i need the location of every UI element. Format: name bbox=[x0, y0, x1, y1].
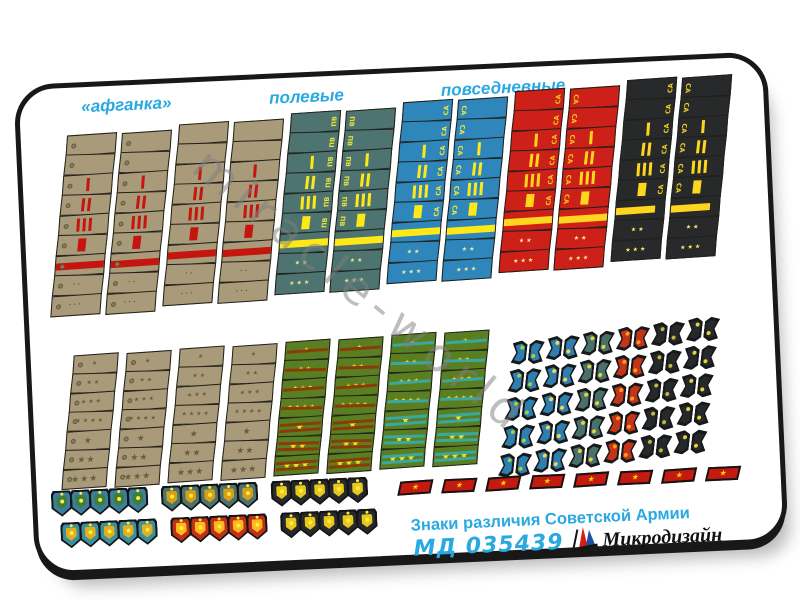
chevron-emblem bbox=[556, 434, 560, 438]
chevron-tab bbox=[638, 435, 656, 460]
chevron-emblem bbox=[594, 401, 598, 405]
red-collar-tab: ★ bbox=[485, 475, 521, 492]
chevron-face bbox=[600, 333, 612, 352]
rank-stripe bbox=[255, 204, 259, 217]
officer-stripe bbox=[281, 407, 322, 411]
officer-stripe bbox=[444, 359, 485, 363]
officer-rank-stars: ★★★★ bbox=[128, 415, 158, 422]
chevron-tab bbox=[536, 420, 554, 445]
rank-stripe bbox=[189, 227, 198, 240]
chevron-tab bbox=[612, 355, 630, 380]
patch-star-dot bbox=[280, 483, 283, 486]
chevron-face bbox=[660, 409, 672, 428]
rank-stars: ★★ bbox=[294, 260, 309, 266]
board-letters: СА bbox=[570, 113, 578, 123]
rank-stripe bbox=[77, 238, 86, 251]
chevron-tab bbox=[651, 322, 669, 347]
chevron-tab bbox=[521, 396, 539, 421]
rank-stripe bbox=[534, 154, 538, 167]
collar-chevron-pair bbox=[571, 415, 606, 441]
rank-stripe bbox=[86, 178, 90, 191]
officer-board-column-everyday-green-red-stripe: ★★★★★★★★★★★★★★★★ bbox=[273, 340, 331, 480]
rank-stripe bbox=[467, 183, 471, 196]
longitudinal-band bbox=[559, 213, 608, 223]
rank-stripe bbox=[536, 173, 540, 186]
rank-stripe bbox=[636, 163, 640, 176]
chevron-tab bbox=[504, 397, 522, 422]
rank-stars: ★★★ bbox=[513, 257, 536, 265]
chevron-face bbox=[670, 324, 682, 343]
board-letters: СА bbox=[437, 166, 445, 176]
chevron-tab bbox=[588, 415, 606, 440]
officer-rank-stars: ★★ bbox=[139, 377, 154, 383]
chevron-emblem bbox=[518, 467, 522, 471]
patch-star-dot bbox=[107, 522, 110, 525]
chevron-tab bbox=[696, 373, 714, 398]
rank-stripe bbox=[580, 191, 589, 204]
officer-stripe bbox=[438, 418, 480, 424]
chevron-face bbox=[587, 446, 599, 465]
chevron-tab bbox=[581, 331, 599, 356]
sleeve-patch bbox=[180, 484, 202, 511]
rank-stripe bbox=[473, 182, 477, 195]
board-letters: СА bbox=[684, 83, 691, 93]
microdesign-logo-icon bbox=[571, 526, 598, 553]
officer-stripe bbox=[285, 368, 326, 372]
rank-stripe bbox=[137, 216, 141, 229]
longitudinal-band bbox=[392, 227, 441, 237]
longitudinal-band bbox=[616, 205, 656, 215]
board-letters: СА bbox=[676, 163, 683, 173]
rank-stripe bbox=[579, 172, 583, 185]
chevron-tab bbox=[703, 317, 721, 342]
rank-stripe bbox=[198, 187, 202, 200]
chevron-tab bbox=[562, 335, 580, 360]
rank-stripe bbox=[695, 140, 699, 153]
board-group-everyday-blue-SA: САСАСАСАСАСА★★★★★САСАСАСАСАСА★★★★★ bbox=[389, 99, 503, 302]
board-column: ••••• bbox=[105, 131, 172, 314]
logo-red-sail bbox=[577, 527, 588, 547]
board-button bbox=[126, 140, 131, 145]
shoulder-board-three-stars: ★★★ bbox=[329, 268, 381, 292]
brand-row: Микродизайн bbox=[571, 521, 723, 554]
sleeve-patch bbox=[127, 487, 149, 514]
patch-group bbox=[270, 477, 366, 507]
chevron-face bbox=[527, 371, 539, 390]
rank-stripe bbox=[692, 180, 701, 193]
rank-stripe bbox=[418, 185, 422, 198]
rank-stripe bbox=[304, 176, 308, 189]
rank-stars: ★★★ bbox=[401, 268, 424, 276]
officer-rank-stars: ★★ bbox=[236, 445, 255, 454]
decal-sheet-photo: «афганка» полевые повседневные •••••••••… bbox=[0, 0, 800, 600]
board-button bbox=[113, 281, 119, 286]
rank-stripe bbox=[135, 196, 139, 209]
shoulder-board-three-stars: ••• bbox=[105, 290, 157, 314]
collar-chevron-pair bbox=[542, 363, 577, 389]
collar-tab-star: ★ bbox=[411, 483, 420, 492]
chevron-tab bbox=[533, 448, 551, 473]
rank-stripe bbox=[194, 207, 198, 220]
chevron-emblem bbox=[693, 444, 697, 448]
officer-rank-stars: ★ bbox=[136, 433, 146, 443]
chevron-face bbox=[622, 442, 634, 461]
rank-stripe bbox=[530, 174, 534, 187]
board-group-field-khaki: •••••••••• bbox=[166, 121, 279, 312]
rank-stripe bbox=[479, 182, 483, 195]
patch-star-dot bbox=[355, 479, 358, 482]
officer-stripe bbox=[385, 421, 427, 427]
collar-chevron-pair bbox=[676, 401, 711, 427]
officer-rank-stars: ★★★ bbox=[230, 464, 258, 475]
officer-board-column-everyday-green-teal-stripe: ★★★★★★★★★★★★★★★★ bbox=[379, 333, 437, 475]
chevron-tab bbox=[686, 317, 704, 342]
collar-chevron-pair bbox=[536, 419, 571, 445]
rank-stripe bbox=[301, 216, 310, 229]
chevron-tab bbox=[641, 406, 659, 431]
officer-stripe bbox=[381, 459, 423, 465]
officer-shoulder-board: ★★★ bbox=[273, 453, 319, 476]
rank-stripe bbox=[359, 174, 363, 187]
board-letters: СА bbox=[680, 123, 687, 133]
sleeve-patch bbox=[327, 478, 349, 505]
collar-chevron-pair bbox=[581, 330, 616, 356]
chevron-tab bbox=[545, 336, 563, 361]
rank-stripe bbox=[361, 194, 365, 207]
patch-group bbox=[51, 487, 147, 517]
officer-stripe bbox=[393, 341, 435, 347]
rank-stripe bbox=[300, 196, 304, 209]
rank-stars: ★★ bbox=[406, 249, 421, 255]
rank-stripe bbox=[589, 151, 593, 164]
officer-rank-stars: ★★★ bbox=[71, 473, 99, 484]
rank-stars: •• bbox=[73, 282, 83, 287]
rank-stripe bbox=[641, 143, 645, 156]
rank-stripe bbox=[365, 153, 369, 166]
chevron-face bbox=[530, 343, 542, 362]
chevron-face bbox=[664, 381, 676, 400]
board-letters: СА bbox=[454, 164, 462, 174]
officer-stripe bbox=[331, 439, 372, 443]
board-group-everyday-teal-PV: ПВПВПВПВПВПВ★★★★★ПВПВПВПВПВПВ★★★★★ bbox=[278, 110, 392, 307]
officer-stripe bbox=[287, 348, 329, 354]
rank-stripe bbox=[477, 162, 481, 175]
rank-stars: ★★★ bbox=[680, 244, 703, 252]
board-letters: СА bbox=[657, 184, 665, 194]
rank-stars: ★★★ bbox=[344, 277, 367, 285]
chevron-emblem bbox=[665, 392, 669, 396]
officer-shoulder-board: ★★★ bbox=[379, 446, 425, 469]
officer-rank-stars: ★★★★ bbox=[181, 411, 211, 418]
chevron-face bbox=[523, 399, 535, 418]
chevron-emblem bbox=[553, 462, 557, 466]
officer-stripe bbox=[437, 432, 478, 436]
collar-chevron-pair bbox=[574, 387, 609, 413]
rank-stars: ★★★ bbox=[289, 279, 312, 287]
chevron-emblem bbox=[598, 373, 602, 377]
officer-stripe bbox=[277, 447, 318, 451]
officer-stripe bbox=[336, 384, 378, 390]
board-button bbox=[63, 223, 68, 228]
chevron-tab bbox=[510, 340, 528, 365]
board-letters: ПВ bbox=[325, 177, 333, 188]
collar-chevron-pair bbox=[673, 429, 708, 455]
officer-rank-stars: ★★★ bbox=[81, 398, 104, 406]
rank-stars: ★★★ bbox=[625, 246, 648, 254]
sleeve-patch bbox=[236, 482, 258, 509]
chevron-tab bbox=[556, 391, 574, 416]
decal-card: «афганка» полевые повседневные •••••••••… bbox=[13, 51, 789, 577]
rank-stars: ★★ bbox=[518, 238, 533, 244]
rank-stripe bbox=[477, 142, 481, 155]
rank-stars: ★★ bbox=[573, 235, 588, 241]
rank-stripe bbox=[424, 185, 428, 198]
chevron-tab bbox=[603, 439, 621, 464]
collar-chevron-pair bbox=[683, 345, 718, 371]
board-button bbox=[76, 381, 82, 386]
chevron-face bbox=[667, 352, 679, 371]
board-letters: ПВ bbox=[327, 156, 334, 167]
chevron-face bbox=[657, 437, 669, 456]
rank-stripe bbox=[367, 193, 371, 206]
board-letters: ПВ bbox=[348, 116, 355, 127]
board-button bbox=[71, 439, 76, 444]
board-letters: СА bbox=[678, 142, 686, 152]
rank-stripe bbox=[591, 171, 595, 184]
sleeve-patch bbox=[51, 490, 73, 517]
board-letters: ПВ bbox=[323, 196, 330, 207]
chevron-emblem bbox=[591, 429, 595, 433]
officer-rank-stars: ★★★ bbox=[240, 389, 263, 397]
rank-stripe bbox=[188, 208, 192, 221]
collar-chevron-pair bbox=[498, 452, 533, 478]
red-collar-tab: ★ bbox=[573, 471, 609, 488]
chevron-emblem bbox=[566, 349, 570, 353]
patch-star-dot bbox=[365, 511, 368, 514]
shoulder-board-three-stars: ★★★ bbox=[441, 257, 493, 281]
collar-chevron-pair bbox=[686, 317, 721, 343]
board-letters: ПВ bbox=[342, 175, 350, 186]
chevron-tab bbox=[661, 377, 679, 402]
rank-stripe bbox=[468, 203, 477, 216]
rank-stripe bbox=[76, 219, 80, 232]
collar-chevron-pair bbox=[504, 396, 539, 422]
board-button bbox=[78, 362, 83, 367]
collar-chevron-pair bbox=[545, 335, 580, 361]
rank-stripe bbox=[534, 134, 538, 147]
chevron-tab bbox=[616, 326, 634, 351]
chevron-emblem bbox=[671, 335, 675, 339]
board-button bbox=[58, 283, 64, 288]
sleeve-patch bbox=[308, 478, 330, 505]
shoulder-board-three-stars: ••• bbox=[217, 279, 269, 303]
officer-rank-stars: ★★ bbox=[183, 448, 202, 457]
shoulder-board-three-stars: ••• bbox=[50, 293, 102, 317]
officer-shoulder-board: ★★★ bbox=[114, 465, 160, 488]
rank-stripe bbox=[701, 120, 705, 133]
rank-stripe bbox=[356, 214, 365, 227]
chevron-tab bbox=[577, 359, 595, 384]
rank-stripe bbox=[200, 207, 204, 220]
rank-stripe bbox=[244, 225, 253, 238]
collar-chevron-pair bbox=[539, 391, 574, 417]
chevron-face bbox=[552, 451, 564, 470]
officer-rank-stars: ★ bbox=[92, 361, 100, 368]
board-button bbox=[74, 400, 79, 405]
board-letters: ПВ bbox=[331, 115, 338, 126]
board-letters: СА bbox=[552, 115, 560, 125]
chevron-tab bbox=[629, 354, 647, 379]
chevron-tab bbox=[539, 392, 557, 417]
shoulder-board-three-stars: ★★★ bbox=[553, 246, 605, 270]
board-letters: СА bbox=[460, 105, 467, 115]
shoulder-board-three-stars: ••• bbox=[162, 282, 214, 306]
rank-stars: ★★ bbox=[630, 226, 645, 232]
rank-stripe bbox=[589, 131, 593, 144]
board-button bbox=[69, 162, 75, 167]
patch-star-dot bbox=[98, 491, 101, 494]
collar-chevron-pair bbox=[533, 448, 568, 474]
chevron-face bbox=[594, 390, 606, 409]
patch-star-dot bbox=[179, 519, 182, 522]
officer-stripe bbox=[330, 445, 371, 449]
officer-rank-stars: ★ bbox=[145, 358, 153, 365]
collar-tab-star: ★ bbox=[587, 475, 596, 484]
officer-rank-stars: ★★★★ bbox=[234, 409, 264, 416]
board-letters: СА bbox=[458, 124, 466, 134]
sleeve-patch bbox=[98, 520, 120, 547]
red-collar-tab: ★ bbox=[529, 474, 565, 490]
sleeve-patch bbox=[299, 511, 321, 538]
sleeve-patch bbox=[189, 516, 211, 543]
sleeve-patch bbox=[70, 489, 92, 516]
longitudinal-band bbox=[223, 246, 272, 256]
chevron-tab bbox=[498, 453, 516, 478]
officer-stripe bbox=[278, 442, 319, 446]
officer-stripe bbox=[279, 427, 321, 433]
board-button bbox=[71, 143, 76, 148]
sleeve-patch bbox=[346, 477, 368, 504]
chevron-emblem bbox=[528, 382, 532, 386]
sleeve-patch bbox=[227, 514, 249, 541]
rank-stars: ••• bbox=[236, 289, 251, 295]
chevron-emblem bbox=[630, 396, 634, 400]
collar-tab-star: ★ bbox=[719, 469, 728, 477]
chevron-face bbox=[517, 455, 529, 474]
rank-stripe bbox=[243, 205, 247, 218]
chevron-tab bbox=[553, 419, 571, 444]
chevron-tab bbox=[606, 411, 624, 436]
officer-stripe bbox=[434, 456, 476, 462]
rank-stripe bbox=[529, 154, 533, 167]
chevron-tab bbox=[664, 349, 682, 374]
board-button bbox=[62, 243, 68, 248]
officer-shoulder-board: ★★★ bbox=[432, 444, 478, 467]
chevron-face bbox=[629, 385, 641, 404]
chevron-face bbox=[699, 376, 711, 395]
red-collar-tab: ★ bbox=[397, 479, 433, 496]
chevron-tab bbox=[623, 410, 641, 435]
rank-stripe bbox=[646, 123, 650, 136]
longitudinal-band bbox=[504, 215, 553, 225]
board-button bbox=[129, 378, 135, 383]
collar-chevron-pair bbox=[638, 434, 673, 460]
chevron-tab bbox=[574, 387, 592, 412]
shoulder-board-three-stars: ★★★ bbox=[386, 260, 438, 284]
chevron-tab bbox=[518, 424, 536, 449]
board-letters: СА bbox=[682, 102, 690, 112]
board-letters: СА bbox=[555, 94, 562, 104]
officer-rank-stars: ★ bbox=[242, 426, 252, 436]
collar-chevron-pair bbox=[603, 438, 638, 464]
officer-rank-stars: ★★ bbox=[130, 452, 149, 461]
officer-rank-stars: ★ bbox=[189, 429, 199, 439]
rank-stripe bbox=[249, 205, 253, 218]
chevron-tab bbox=[501, 425, 519, 450]
board-button bbox=[127, 398, 132, 403]
chevron-emblem bbox=[521, 438, 525, 442]
chevron-emblem bbox=[531, 354, 535, 358]
brand-name: Микродизайн bbox=[602, 524, 723, 552]
board-letters: СА bbox=[663, 123, 670, 133]
officer-rank-stars: ★ bbox=[83, 435, 93, 445]
sleeve-patch bbox=[246, 513, 268, 540]
sleeve-patch bbox=[356, 508, 378, 535]
collar-tab-star: ★ bbox=[499, 479, 508, 488]
sleeve-patch bbox=[161, 485, 183, 512]
rank-stripe bbox=[416, 165, 420, 178]
collar-tab-star: ★ bbox=[543, 477, 552, 485]
board-letters: СА bbox=[440, 126, 448, 136]
officer-rank-stars: ★ bbox=[198, 354, 206, 361]
collar-tab-star: ★ bbox=[631, 473, 640, 481]
officer-rank-stars: ★ bbox=[250, 351, 258, 358]
chevron-tab bbox=[647, 350, 665, 375]
sleeve-patch bbox=[318, 510, 340, 537]
rank-stars: ★★ bbox=[349, 257, 364, 263]
officer-shoulder-board: ★★★ bbox=[61, 467, 107, 490]
chevron-tab bbox=[655, 434, 673, 459]
chevron-face bbox=[562, 366, 574, 385]
chevron-emblem bbox=[636, 340, 640, 344]
collar-chevron-pair bbox=[568, 443, 603, 469]
chevron-tab bbox=[658, 406, 676, 431]
rank-stripe bbox=[637, 183, 646, 196]
board-button bbox=[120, 200, 126, 205]
longitudinal-band bbox=[280, 238, 329, 248]
board-letters: СА bbox=[450, 205, 458, 215]
chevron-emblem bbox=[563, 377, 567, 381]
board-letters: СА bbox=[452, 185, 459, 195]
officer-stripe bbox=[445, 339, 487, 345]
patch-star-dot bbox=[198, 518, 201, 521]
board-letters: СА bbox=[439, 145, 446, 155]
board-letters: СА bbox=[549, 155, 557, 165]
officer-stripe bbox=[384, 435, 425, 439]
officer-stripe bbox=[436, 438, 477, 442]
sleeve-patch bbox=[280, 512, 302, 539]
collar-tab-star: ★ bbox=[675, 471, 684, 480]
board-letters: СА bbox=[674, 182, 682, 192]
board-letters: ПВ bbox=[328, 136, 336, 147]
officer-stripe bbox=[442, 377, 484, 383]
longitudinal-band bbox=[335, 235, 384, 245]
rank-stripe bbox=[422, 165, 426, 178]
shoulder-board-three-stars: ★★★ bbox=[665, 235, 717, 259]
board-button bbox=[118, 221, 123, 226]
rank-stars: ••• bbox=[181, 291, 196, 297]
collar-chevron-pair bbox=[577, 358, 612, 384]
